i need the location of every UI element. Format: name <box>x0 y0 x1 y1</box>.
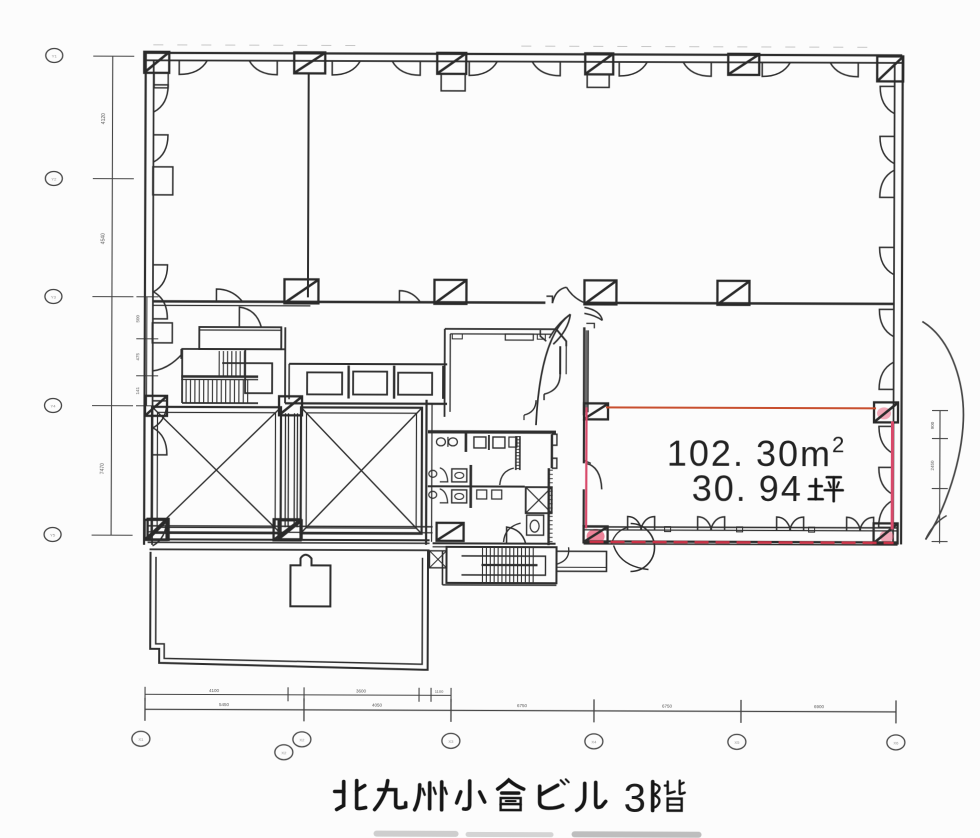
svg-text:Y4: Y4 <box>51 403 57 408</box>
svg-text:2450: 2450 <box>930 460 935 471</box>
svg-text:475: 475 <box>135 353 140 361</box>
svg-text:7470: 7470 <box>100 463 106 474</box>
svg-text:5450: 5450 <box>219 702 230 707</box>
svg-text:3: 3 <box>624 776 646 820</box>
svg-text:X2: X2 <box>299 737 305 742</box>
svg-text:X6: X6 <box>893 740 899 745</box>
svg-text:30.94: 30.94 <box>692 468 803 509</box>
svg-text:Y1: Y1 <box>52 53 58 58</box>
svg-text:4540: 4540 <box>101 233 107 244</box>
svg-text:X5: X5 <box>734 740 740 745</box>
svg-text:500: 500 <box>135 315 140 323</box>
svg-text:Y3: Y3 <box>51 294 57 299</box>
svg-text:X1: X1 <box>138 737 144 742</box>
svg-text:X4: X4 <box>591 739 597 744</box>
svg-text:1100: 1100 <box>435 689 444 694</box>
svg-text:900: 900 <box>930 421 935 429</box>
svg-text:Y5: Y5 <box>50 532 56 537</box>
svg-text:Y2: Y2 <box>51 176 57 181</box>
svg-text:6750: 6750 <box>517 703 528 708</box>
svg-text:6900: 6900 <box>814 704 825 709</box>
svg-text:X3: X3 <box>448 739 454 744</box>
svg-text:4050: 4050 <box>372 703 383 708</box>
svg-text:4100: 4100 <box>209 688 220 693</box>
svg-text:141: 141 <box>135 387 140 395</box>
svg-text:3600: 3600 <box>356 689 367 694</box>
svg-text:X2: X2 <box>281 750 287 755</box>
svg-text:6750: 6750 <box>662 704 673 709</box>
svg-text:4120: 4120 <box>101 113 107 124</box>
